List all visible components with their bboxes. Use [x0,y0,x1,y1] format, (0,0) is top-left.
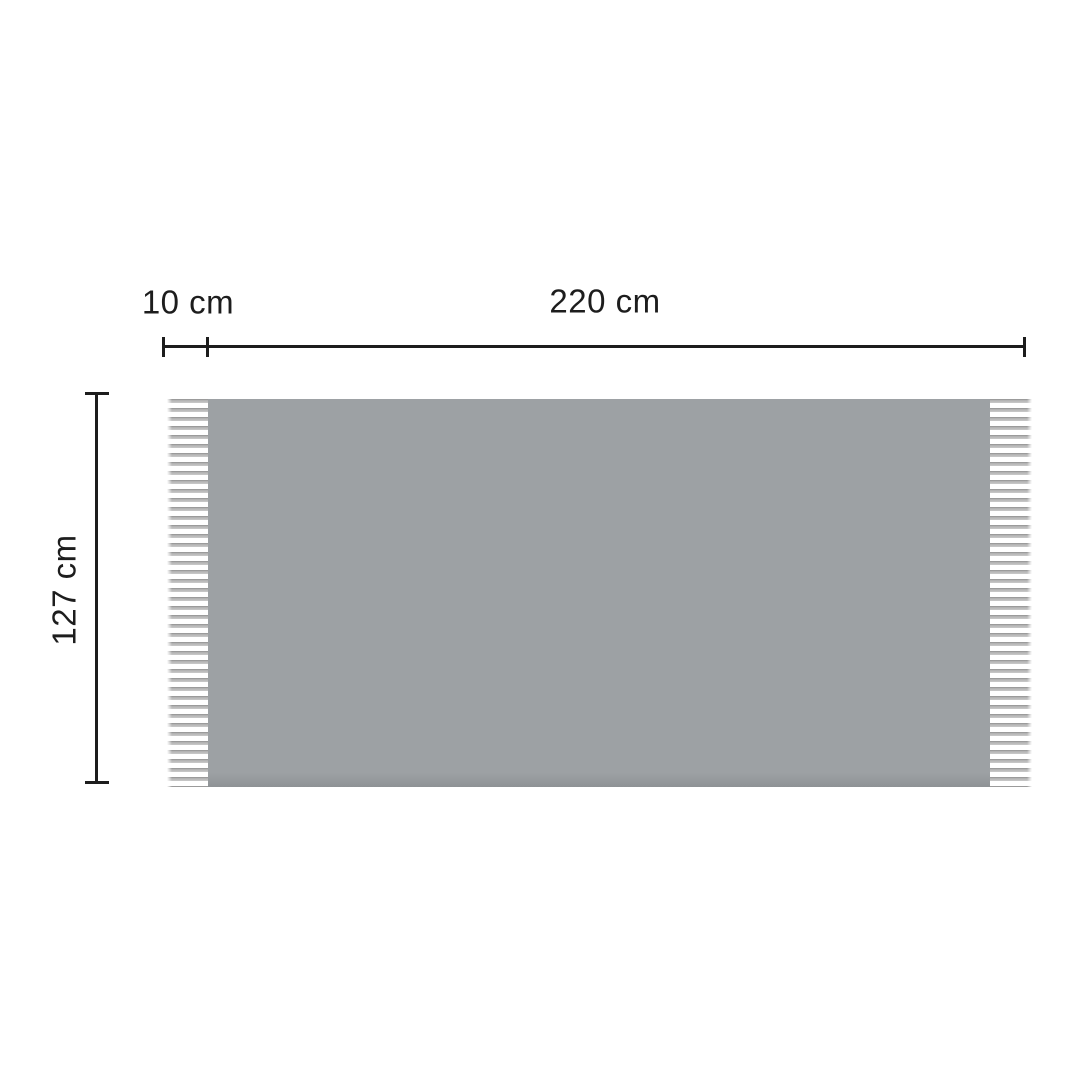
horizontal-tick-fringe-boundary [206,337,209,357]
blanket-left-fringe [167,399,208,787]
horizontal-dimension-rule [162,345,1026,348]
vertical-dimension-line [85,392,109,784]
width-label: 220 cm [549,285,660,318]
vertical-dimension-rule [95,392,98,784]
fringe-width-label: 10 cm [142,286,234,319]
blanket-body [208,399,990,787]
dimension-diagram: 10 cm 220 cm 127 cm [0,0,1080,1080]
vertical-tick-top [85,392,109,395]
blanket-right-fringe [990,399,1032,787]
horizontal-dimension-line [162,337,1026,357]
vertical-tick-bottom [85,781,109,784]
horizontal-tick-left [162,337,165,357]
horizontal-tick-right [1023,337,1026,357]
height-label: 127 cm [48,534,81,645]
